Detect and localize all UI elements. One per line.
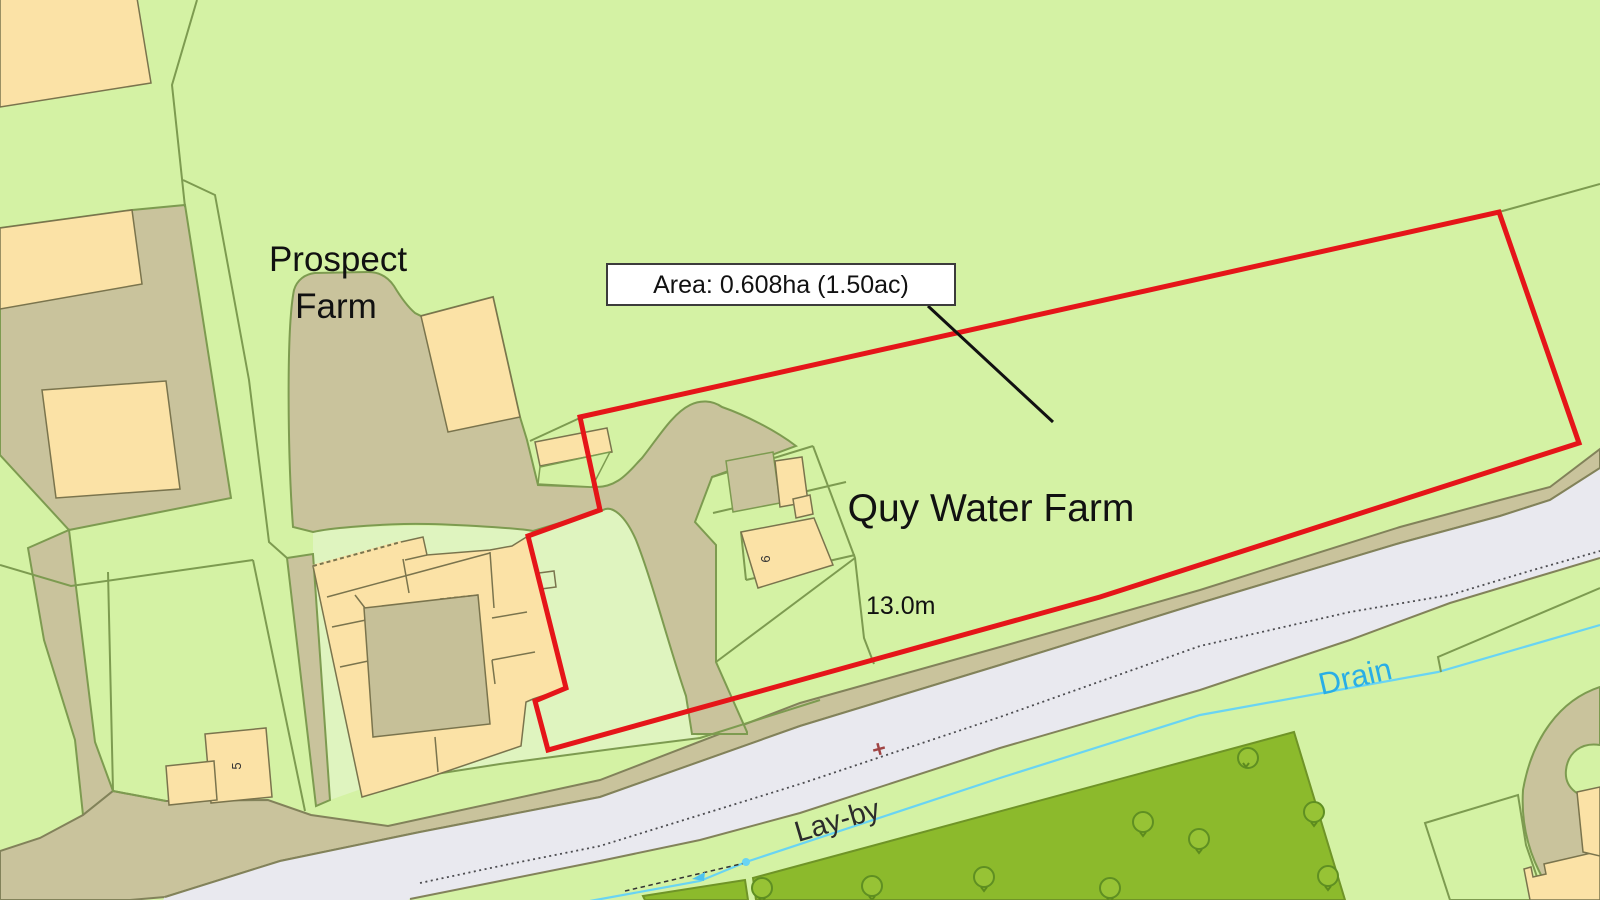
svg-text:6: 6 <box>758 555 773 562</box>
svg-text:5: 5 <box>229 762 244 769</box>
svg-text:Farm: Farm <box>295 287 377 326</box>
svg-text:Quy Water Farm: Quy Water Farm <box>848 487 1135 530</box>
svg-text:13.0m: 13.0m <box>866 592 935 620</box>
svg-text:Area: 0.608ha (1.50ac): Area: 0.608ha (1.50ac) <box>653 271 909 299</box>
svg-text:Prospect: Prospect <box>269 240 407 279</box>
